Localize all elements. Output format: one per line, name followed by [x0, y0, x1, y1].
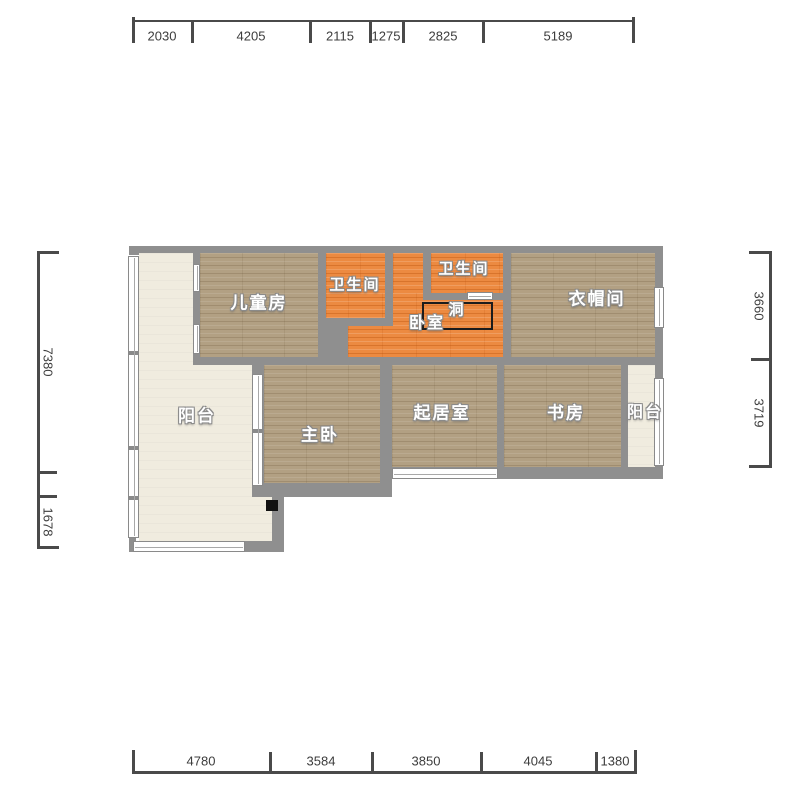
dim-top-3: 1275 [372, 29, 401, 44]
dim-tick [37, 251, 59, 254]
dim-left-0: 7380 [41, 348, 56, 377]
dim-bottom-0: 4780 [187, 754, 216, 769]
dim-left-1: 1678 [41, 508, 56, 537]
room-label-bathroom-left: 卫生间 [329, 274, 380, 295]
wall-bath-left-bottom [318, 318, 393, 326]
dim-tick [37, 471, 57, 474]
window-balcony-children-top [193, 264, 200, 292]
window-divider [129, 351, 138, 355]
dim-top-5: 5189 [544, 29, 573, 44]
dim-tick [751, 358, 772, 361]
wall-master-bottom [252, 483, 392, 497]
dimension-line-top [133, 20, 634, 22]
wall-bedroom-cloak [503, 253, 511, 365]
dim-tick [371, 752, 374, 772]
room-label-cloakroom: 衣帽间 [569, 285, 626, 310]
dim-bottom-3: 4045 [524, 754, 553, 769]
dim-right-1: 3719 [752, 399, 767, 428]
window-bedroom-sill [467, 292, 493, 300]
wall-living-study [497, 365, 504, 475]
room-label-balcony-right: 阳台 [627, 398, 663, 422]
window-living-bottom [392, 468, 498, 479]
room-label-children: 儿童房 [231, 289, 288, 314]
dimension-line-bottom [133, 771, 636, 774]
dim-top-4: 2825 [429, 29, 458, 44]
wall-balcony-bottom-right [245, 541, 284, 552]
room-label-hole: 洞 [448, 299, 465, 320]
dim-tick [269, 752, 272, 772]
dim-tick [480, 752, 483, 772]
column-marker [266, 500, 278, 511]
dim-bottom-4: 1380 [601, 754, 630, 769]
wall-mid-horizontal [193, 357, 663, 365]
dim-bottom-2: 3850 [412, 754, 441, 769]
room-label-living: 起居室 [414, 399, 471, 424]
dim-tick [749, 251, 772, 254]
wall-top [133, 246, 663, 253]
room-label-bedroom: 卧室 [409, 309, 445, 333]
window-balcony-children-bottom [193, 324, 200, 354]
wall-top-left-cap [129, 246, 139, 255]
dim-tick [632, 17, 635, 43]
room-label-balcony-left: 阳台 [178, 402, 216, 427]
window-cloakroom-right [654, 287, 664, 328]
window-divider [253, 429, 262, 433]
room-label-master: 主卧 [301, 421, 339, 446]
dim-tick [132, 17, 135, 43]
dim-bottom-1: 3584 [307, 754, 336, 769]
room-label-study: 书房 [547, 399, 585, 424]
dim-tick [132, 750, 135, 774]
dim-top-2: 2115 [326, 29, 354, 44]
dimension-line-left [37, 252, 40, 548]
dim-tick [37, 546, 59, 549]
dim-tick [749, 465, 772, 468]
window-balcony-bottom [133, 541, 245, 552]
dim-tick [634, 750, 637, 774]
room-label-bathroom-right: 卫生间 [438, 258, 489, 279]
dim-tick [402, 20, 405, 43]
dim-tick [482, 20, 485, 43]
dim-top-1: 4205 [237, 29, 266, 44]
dim-top-0: 2030 [148, 29, 177, 44]
window-divider [129, 496, 138, 500]
dim-tick [191, 20, 194, 43]
dim-right-0: 3660 [752, 292, 767, 321]
dim-tick [309, 20, 312, 43]
floor-plan-canvas: 儿童房 卫生间 卫生间 衣帽间 卧室 洞 阳台 主卧 起居室 书房 阳台 203… [0, 0, 800, 800]
window-balcony-right [654, 378, 664, 466]
dim-tick [37, 495, 57, 498]
window-balcony-left [128, 256, 139, 538]
dim-tick [595, 752, 598, 772]
window-divider [129, 446, 138, 450]
wall-bath-left-right [385, 253, 393, 326]
window-master-left [252, 374, 263, 486]
